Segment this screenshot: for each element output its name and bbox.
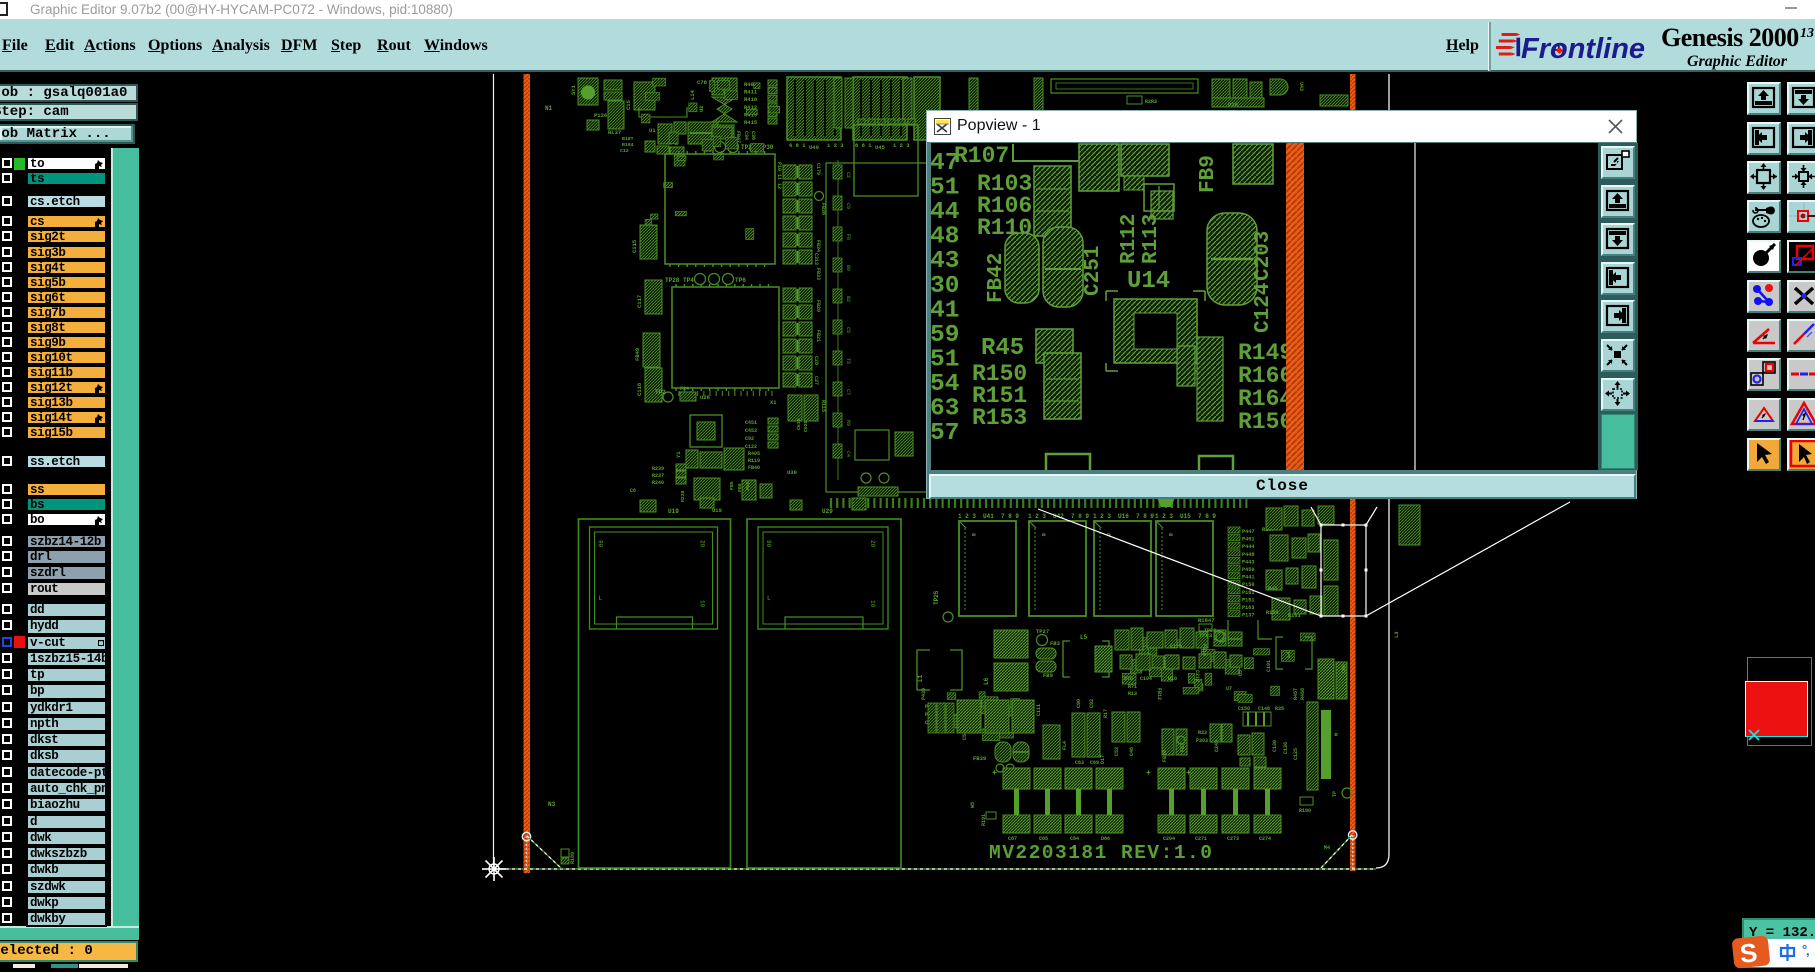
- svg-text:P448: P448: [1242, 552, 1254, 558]
- svg-text:R13: R13: [1128, 691, 1137, 697]
- svg-text:C249: C249: [1214, 740, 1220, 752]
- svg-text:C28: C28: [813, 356, 819, 365]
- svg-text:R457: R457: [1293, 688, 1299, 700]
- svg-text:44: 44: [931, 199, 959, 226]
- svg-text:C619: C619: [796, 418, 802, 430]
- svg-text:+: +: [1186, 769, 1191, 778]
- svg-text:48: 48: [931, 224, 959, 251]
- svg-text:C148: C148: [1258, 706, 1270, 712]
- svg-text:U43: U43: [1298, 82, 1304, 91]
- svg-text:C34: C34: [743, 131, 749, 140]
- svg-text:C111: C111: [1036, 704, 1042, 716]
- svg-text:FB34: FB34: [815, 240, 821, 252]
- svg-text:SY1: SY1: [570, 84, 577, 95]
- svg-text:C6: C6: [630, 488, 636, 494]
- svg-text:R411: R411: [744, 89, 758, 96]
- svg-text:R458: R458: [1300, 688, 1306, 700]
- svg-text:C36: C36: [750, 131, 756, 140]
- svg-text:U19: U19: [668, 508, 679, 515]
- svg-text:P163: P163: [1242, 605, 1254, 611]
- svg-text:R153: R153: [972, 405, 1027, 431]
- svg-text:C313: C313: [813, 253, 819, 265]
- svg-text:C191: C191: [1266, 660, 1272, 672]
- svg-text:R418: R418: [744, 96, 758, 103]
- svg-text:U30: U30: [787, 469, 797, 476]
- svg-text:U29: U29: [822, 508, 833, 515]
- svg-text:P10 11 12: P10 11 12: [776, 162, 782, 189]
- svg-text:54: 54: [931, 371, 959, 398]
- svg-text:30: 30: [931, 273, 959, 300]
- svg-text:U2: U2: [698, 105, 705, 112]
- svg-text:TP27: TP27: [1036, 628, 1049, 635]
- svg-text:63: 63: [931, 396, 959, 423]
- svg-text:C150: C150: [1238, 706, 1250, 712]
- svg-text:L14: L14: [689, 89, 696, 100]
- svg-text:7 8 9: 7 8 9: [1071, 513, 1089, 520]
- svg-text:7 8 9: 7 8 9: [1001, 513, 1019, 520]
- svg-text:C179: C179: [815, 163, 821, 175]
- svg-text:B0: B0: [845, 265, 851, 271]
- svg-text:R240: R240: [652, 480, 664, 486]
- svg-text:P450: P450: [1242, 567, 1254, 573]
- svg-text:FB10: FB10: [1201, 644, 1207, 656]
- svg-text:R405: R405: [748, 451, 760, 457]
- svg-text:P439: P439: [921, 688, 927, 700]
- svg-text:N3: N3: [548, 801, 556, 808]
- svg-text:C115: C115: [631, 239, 638, 253]
- svg-text:C251: C251: [1082, 246, 1105, 296]
- svg-text:C124: C124: [1252, 283, 1275, 333]
- svg-text:R71: R71: [1128, 684, 1137, 690]
- svg-text:MV2203181 REV:1.0: MV2203181 REV:1.0: [989, 842, 1213, 864]
- svg-text:TP28 TP4: TP28 TP4: [665, 277, 694, 284]
- svg-text:X1: X1: [770, 399, 777, 406]
- svg-text:R9: R9: [845, 420, 851, 426]
- svg-text:C2: C2: [845, 172, 851, 178]
- svg-text:R184: R184: [622, 142, 634, 148]
- svg-text:U10: U10: [1168, 676, 1177, 682]
- svg-text:20: 20: [699, 540, 706, 548]
- svg-text:FB6: FB6: [737, 483, 743, 492]
- svg-text:C27: C27: [813, 376, 819, 385]
- svg-text:U41: U41: [983, 513, 994, 520]
- svg-text:10: 10: [699, 600, 706, 608]
- svg-text:D17: D17: [1100, 755, 1106, 764]
- svg-text:U16: U16: [1118, 513, 1129, 520]
- svg-text:C90: C90: [1076, 699, 1082, 708]
- svg-text:C12: C12: [620, 148, 629, 154]
- svg-text:U26: U26: [700, 394, 710, 401]
- svg-text:F8: F8: [845, 234, 851, 240]
- svg-text:U40: U40: [809, 144, 819, 151]
- svg-text:20: 20: [869, 540, 876, 548]
- svg-text:90: 90: [597, 540, 604, 548]
- svg-text:U45: U45: [875, 144, 886, 151]
- svg-text:C46: C46: [1129, 747, 1135, 756]
- svg-text:P451: P451: [1242, 537, 1254, 543]
- svg-text:TP6: TP6: [735, 277, 746, 284]
- svg-text:L3: L3: [1393, 631, 1400, 638]
- svg-text:1 2 3: 1 2 3: [1093, 513, 1111, 520]
- svg-text:R190: R190: [1299, 808, 1311, 814]
- svg-text:TP2: TP2: [655, 389, 666, 396]
- svg-text:TP: TP: [1332, 791, 1338, 797]
- svg-text:F24: F24: [680, 386, 689, 392]
- svg-text:M4: M4: [1324, 845, 1330, 851]
- svg-text:R75: R75: [1124, 676, 1133, 682]
- svg-text:FB5: FB5: [729, 481, 735, 490]
- svg-text:R107: R107: [954, 143, 1009, 169]
- svg-text:90: 90: [765, 540, 772, 548]
- svg-text:C63: C63: [1075, 760, 1084, 766]
- svg-text:C274: C274: [1259, 836, 1271, 842]
- svg-text:R45: R45: [981, 335, 1024, 362]
- svg-text:C451: C451: [745, 420, 757, 426]
- svg-text:FB20: FB20: [815, 300, 821, 312]
- svg-text:FB12: FB12: [1156, 688, 1162, 700]
- svg-text:6 8 1: 6 8 1: [789, 142, 806, 149]
- svg-text:R150: R150: [1266, 610, 1278, 616]
- svg-text:R50: R50: [745, 481, 751, 490]
- svg-text:C453: C453: [745, 428, 757, 434]
- svg-text:C118: C118: [636, 382, 643, 396]
- svg-text:C136: C136: [1283, 742, 1289, 754]
- svg-text:R415: R415: [744, 119, 758, 126]
- svg-text:FL4: FL4: [1062, 741, 1068, 750]
- svg-text:C122: C122: [745, 444, 757, 450]
- svg-text:43: 43: [931, 248, 959, 275]
- svg-text:M: M: [1334, 733, 1340, 736]
- svg-text:FB9: FB9: [1043, 672, 1053, 679]
- svg-text:1 2 3: 1 2 3: [1028, 513, 1046, 520]
- svg-text:1 2 3: 1 2 3: [893, 142, 910, 149]
- svg-text:7 8 9: 7 8 9: [1136, 513, 1154, 520]
- svg-text:FB21: FB21: [815, 330, 821, 342]
- svg-text:41: 41: [931, 297, 959, 324]
- svg-text:C4: C4: [845, 451, 851, 457]
- svg-text:C78: C78: [697, 79, 708, 86]
- svg-text:C92: C92: [745, 436, 754, 442]
- svg-text:FB38: FB38: [1162, 750, 1168, 762]
- svg-text:C117: C117: [636, 295, 643, 308]
- svg-text:R156: R156: [1238, 409, 1293, 435]
- svg-text:R163: R163: [1288, 613, 1300, 619]
- svg-text:10: 10: [869, 600, 876, 608]
- svg-text:RL37: RL37: [608, 129, 621, 136]
- svg-text:P443: P443: [1242, 559, 1254, 565]
- svg-text:FB40: FB40: [748, 465, 760, 471]
- svg-text:FB36: FB36: [820, 203, 826, 215]
- svg-text:W5: W5: [970, 802, 976, 808]
- svg-text:C15: C15: [625, 99, 632, 110]
- svg-text:C273: C273: [1227, 836, 1239, 842]
- svg-text:FB39: FB39: [973, 755, 986, 762]
- svg-text:B18T: B18T: [622, 136, 634, 142]
- svg-text:P444: P444: [1242, 544, 1254, 550]
- svg-text:B2: B2: [845, 296, 851, 302]
- svg-text:R45: R45: [1268, 586, 1277, 592]
- svg-text:R237: R237: [652, 473, 664, 479]
- svg-text:C92: C92: [1089, 699, 1095, 708]
- svg-text:P137: P137: [1242, 613, 1254, 619]
- svg-text:TP25: TP25: [933, 590, 940, 605]
- svg-text:L4: L4: [1285, 651, 1292, 658]
- svg-text:U14: U14: [1127, 268, 1170, 295]
- svg-text:R189: R189: [570, 852, 576, 864]
- svg-text:P303: P303: [1196, 738, 1208, 744]
- svg-text:FB3: FB3: [1050, 640, 1061, 647]
- svg-text:U1: U1: [649, 127, 656, 134]
- svg-text:R2R3: R2R3: [1145, 99, 1157, 105]
- svg-text:D14: D14: [1228, 101, 1239, 108]
- svg-text:R17: R17: [1103, 709, 1109, 718]
- svg-text:P151: P151: [1242, 597, 1254, 603]
- svg-text:FB49: FB49: [634, 348, 641, 361]
- svg-text:51: 51: [931, 346, 959, 373]
- svg-text:U7: U7: [1226, 686, 1232, 692]
- svg-text:C128: C128: [1170, 644, 1182, 650]
- svg-text:51: 51: [931, 175, 959, 202]
- svg-text:R239: R239: [652, 466, 664, 472]
- svg-text:L5: L5: [1080, 634, 1088, 641]
- svg-text:C9: C9: [845, 203, 851, 209]
- svg-text:R238: R238: [680, 490, 686, 502]
- svg-text:C620: C620: [803, 420, 809, 432]
- svg-text:R115: R115: [820, 400, 826, 412]
- svg-text:U5: U5: [1238, 670, 1244, 676]
- svg-text:C130: C130: [1272, 740, 1278, 752]
- svg-text:C53: C53: [1114, 747, 1120, 756]
- svg-text:R33: R33: [1198, 730, 1207, 736]
- svg-text:+: +: [992, 769, 997, 778]
- svg-text:7 8 9: 7 8 9: [1198, 513, 1216, 520]
- svg-text:6 8 1: 6 8 1: [855, 142, 872, 149]
- svg-text:FB9: FB9: [1197, 155, 1220, 193]
- svg-text:L6: L6: [983, 677, 990, 685]
- svg-text:R35: R35: [1275, 706, 1284, 712]
- svg-text:R119: R119: [748, 458, 760, 464]
- svg-text:C212: C212: [1194, 670, 1200, 682]
- svg-text:TP03: TP03: [1199, 632, 1213, 639]
- svg-text:P447: P447: [1242, 529, 1254, 535]
- svg-text:59: 59: [931, 322, 959, 349]
- svg-text:CN2: CN2: [1341, 664, 1347, 673]
- svg-text:C104: C104: [1140, 676, 1152, 682]
- svg-text:P126: P126: [594, 112, 607, 119]
- svg-text:U15: U15: [1180, 513, 1191, 520]
- svg-text:L: L: [767, 595, 771, 602]
- svg-text:P441: P441: [1242, 575, 1254, 581]
- svg-text:FB33: FB33: [815, 268, 821, 280]
- svg-text:C125: C125: [1293, 748, 1299, 760]
- svg-text:57: 57: [931, 420, 959, 447]
- svg-text:N1: N1: [545, 105, 553, 112]
- svg-text:C7: C7: [845, 389, 851, 395]
- svg-text:R191: R191: [981, 814, 987, 826]
- svg-text:1 2 3: 1 2 3: [827, 142, 844, 149]
- svg-text:C203: C203: [1252, 231, 1275, 281]
- svg-text:C69: C69: [1090, 760, 1099, 766]
- svg-text:R112: R112: [1118, 214, 1141, 264]
- svg-text:L1: L1: [917, 674, 924, 682]
- svg-text:1 2 3: 1 2 3: [958, 513, 976, 520]
- svg-text:+: +: [1146, 769, 1151, 778]
- svg-text:C5: C5: [845, 327, 851, 333]
- svg-text:T5: T5: [845, 358, 851, 364]
- svg-text:R113: R113: [1140, 214, 1163, 264]
- svg-text:R1847: R1847: [1198, 617, 1215, 624]
- svg-text:Y1: Y1: [675, 451, 682, 458]
- svg-text:L: L: [599, 595, 603, 602]
- svg-text:1 2 3: 1 2 3: [1155, 513, 1173, 520]
